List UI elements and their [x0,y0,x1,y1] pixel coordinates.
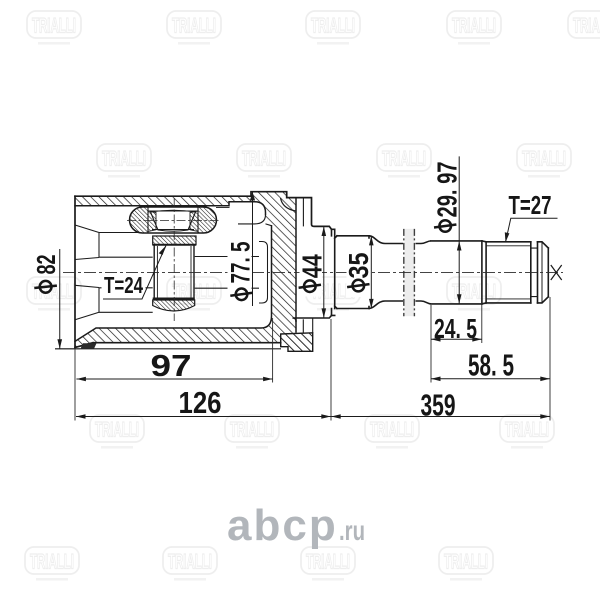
svg-text:TRIALLI: TRIALLI [522,148,566,171]
svg-text:77. 5: 77. 5 [226,242,256,284]
svg-text:T=27: T=27 [509,192,552,220]
svg-text:.ru: .ru [339,515,365,546]
svg-text:TRIALLI: TRIALLI [102,148,146,171]
svg-text:TRIALLI: TRIALLI [95,419,139,442]
svg-text:82: 82 [31,255,61,275]
svg-text:35: 35 [343,253,374,279]
svg-text:44: 44 [296,254,327,279]
svg-text:TRIALLI: TRIALLI [306,551,350,574]
svg-text:TRIALLI: TRIALLI [172,15,216,38]
svg-text:TRIALLI: TRIALLI [32,281,76,304]
svg-text:TRIALLI: TRIALLI [242,148,286,171]
svg-text:T=24: T=24 [104,272,143,298]
svg-text:29. 97: 29. 97 [432,162,463,218]
svg-text:97: 97 [151,348,192,383]
svg-text:TRIALLI: TRIALLI [168,551,212,574]
svg-text:TRIALLI: TRIALLI [30,551,74,574]
svg-text:TRIALLI: TRIALLI [370,419,414,442]
svg-text:TRIALLI: TRIALLI [230,419,274,442]
svg-text:TRIALLI: TRIALLI [444,551,488,574]
svg-text:abcp: abcp [227,501,338,550]
svg-text:TRIALLI: TRIALLI [505,419,549,442]
svg-text:24. 5: 24. 5 [434,313,477,344]
svg-text:TRIALLI: TRIALLI [311,15,355,38]
svg-text:TRIALLI: TRIALLI [382,148,426,171]
svg-text:TRIALLI: TRIALLI [452,15,496,38]
svg-text:126: 126 [179,385,222,420]
svg-text:TRIALLI: TRIALLI [32,15,76,38]
svg-text:TRIALLI: TRIALLI [573,15,600,38]
svg-text:359: 359 [421,389,456,423]
svg-text:58. 5: 58. 5 [468,349,514,383]
